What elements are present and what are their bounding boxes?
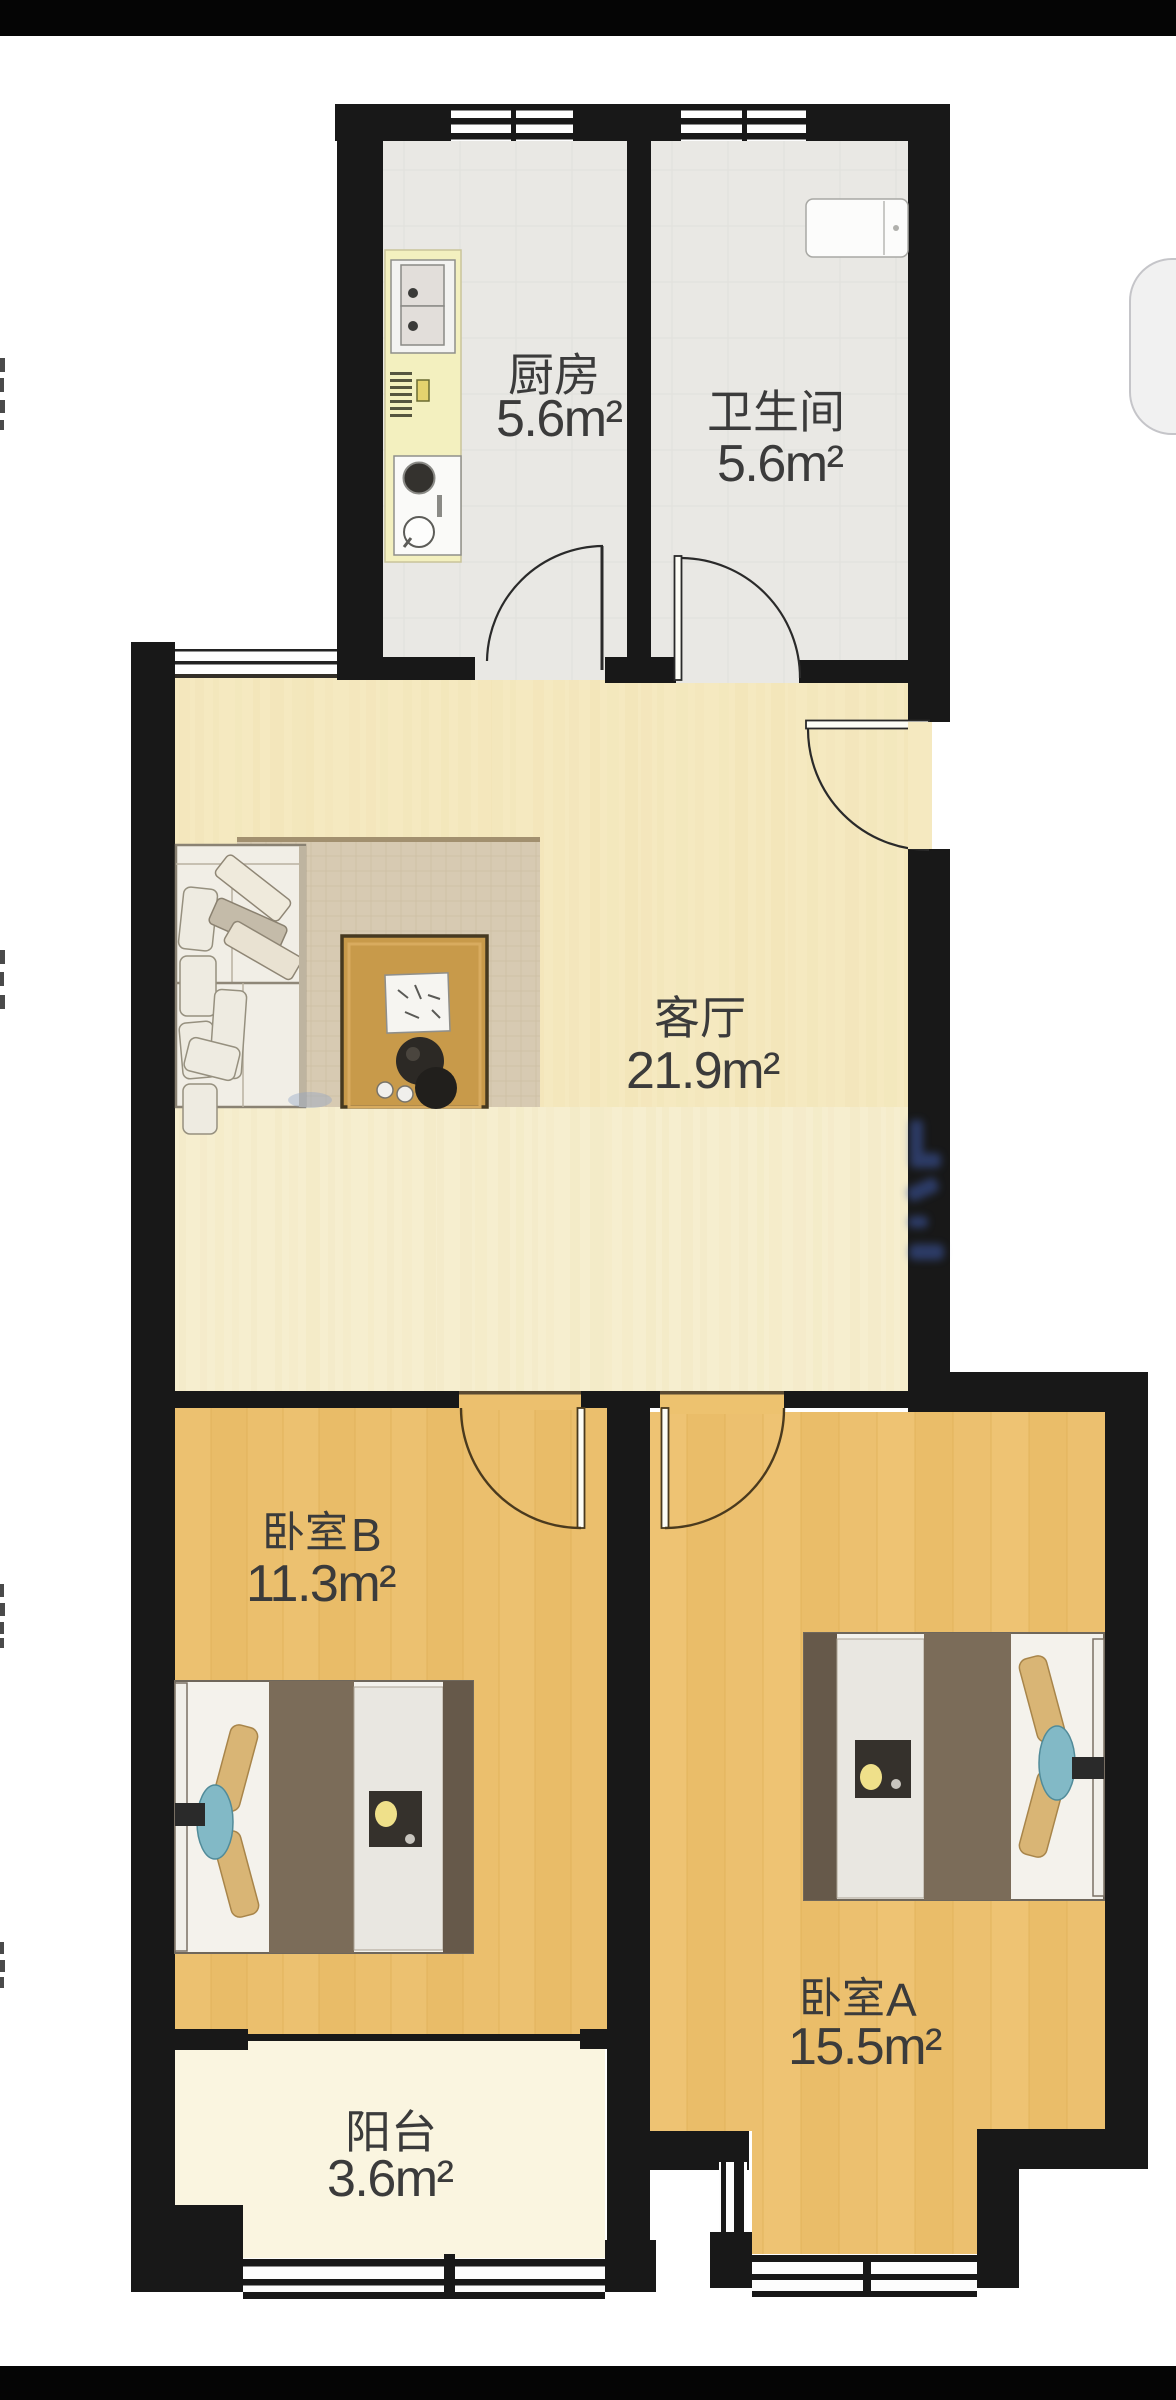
svg-text:B: B — [351, 1509, 382, 1561]
svg-text:15.5m²: 15.5m² — [788, 2018, 942, 2076]
svg-text:5.6m²: 5.6m² — [496, 390, 623, 448]
svg-text:5.6m²: 5.6m² — [717, 435, 844, 493]
svg-text:3.6m²: 3.6m² — [327, 2150, 454, 2208]
svg-text:11.3m²: 11.3m² — [246, 1555, 396, 1613]
svg-text:21.9m²: 21.9m² — [626, 1042, 780, 1100]
